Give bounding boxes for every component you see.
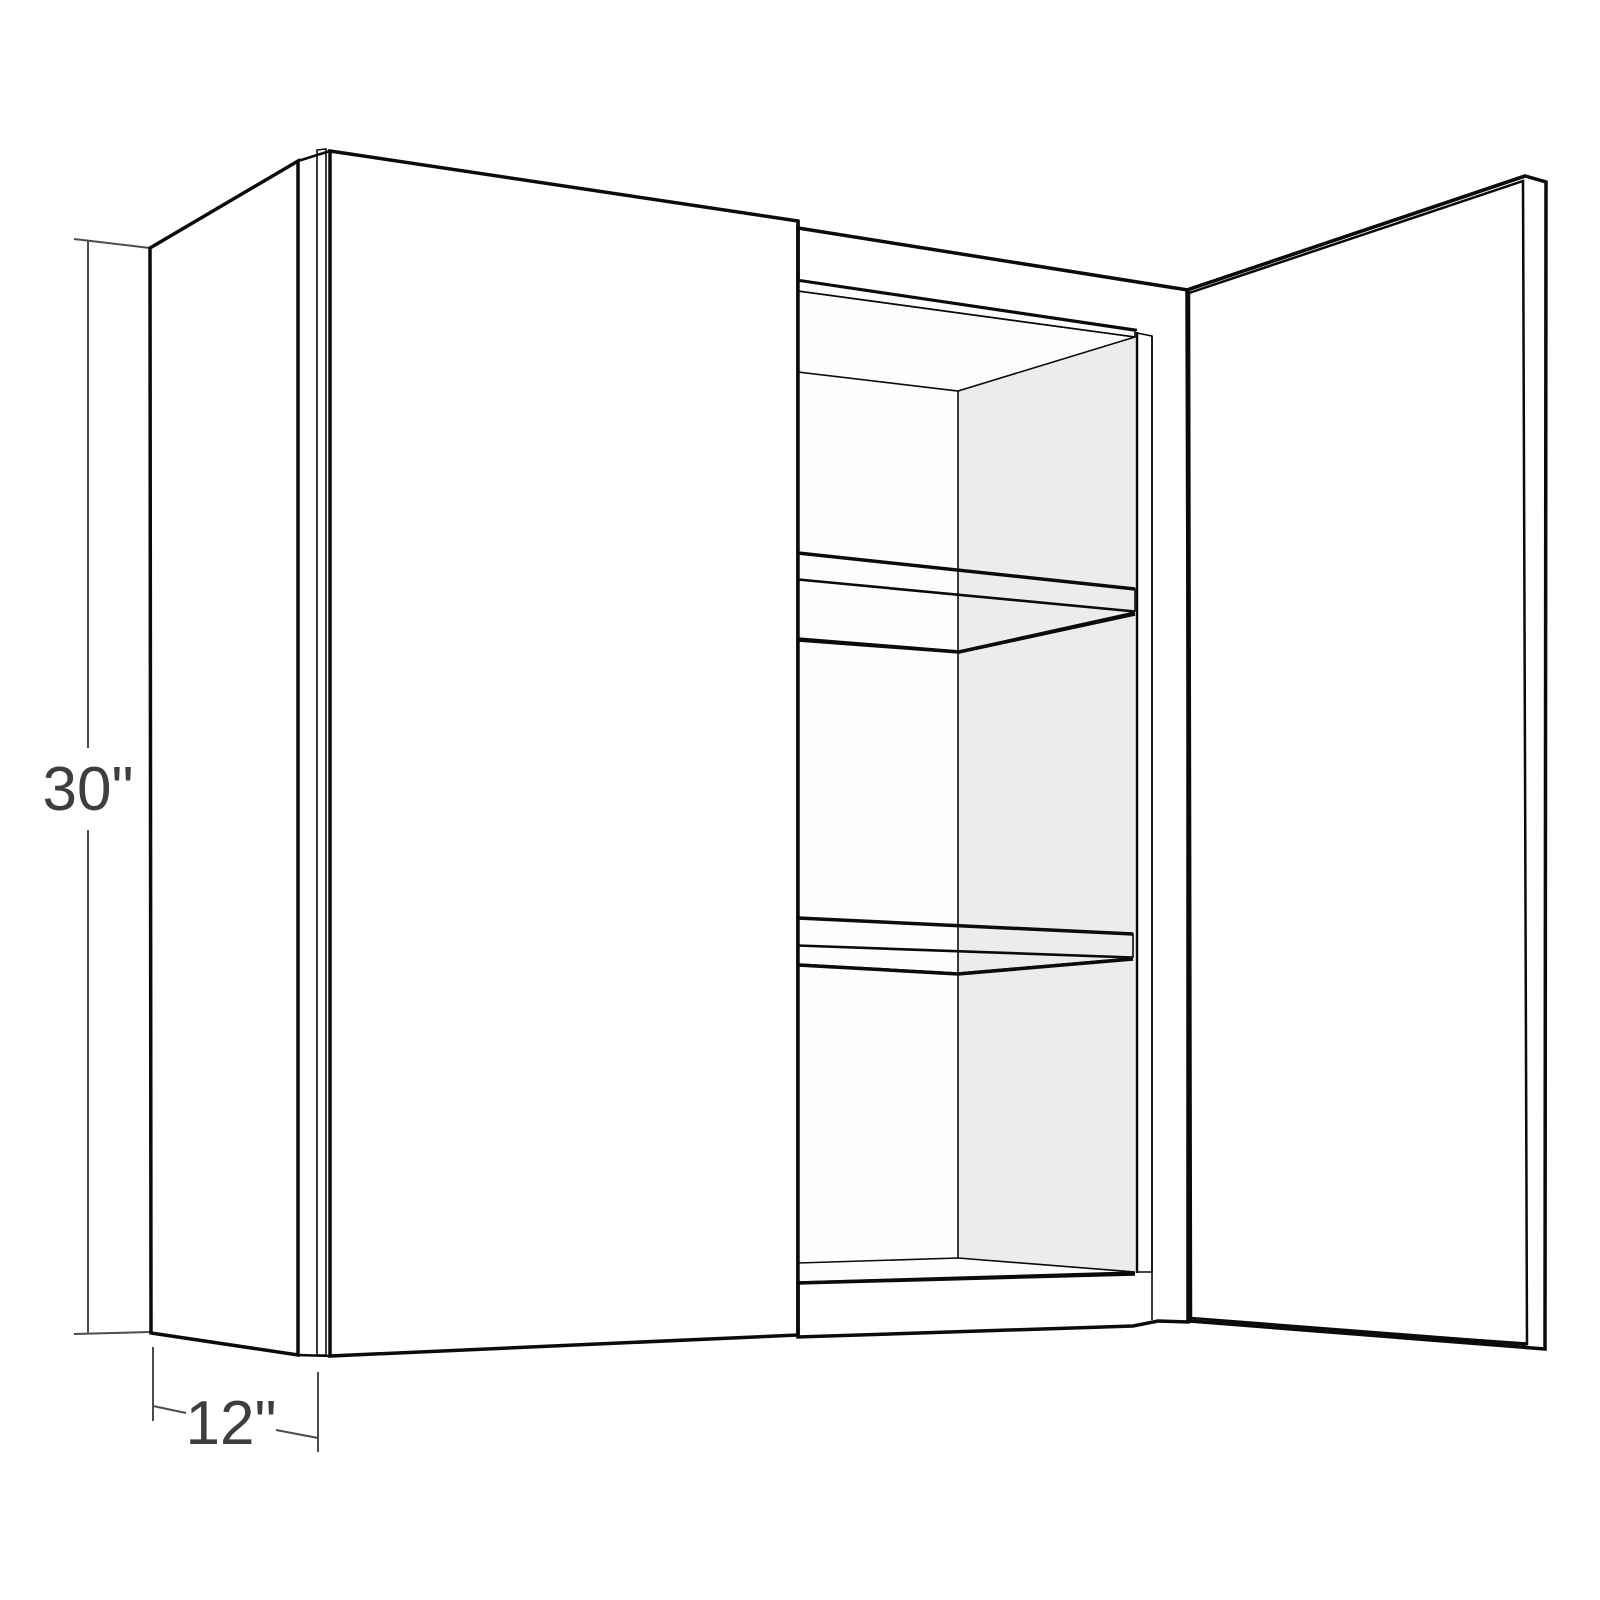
closed-left-door — [330, 151, 798, 1356]
right-stile-inner-edge — [1137, 333, 1152, 1272]
height-dimension-tick-top — [74, 239, 150, 248]
open-door-top-edge — [1187, 176, 1525, 290]
depth-dimension-line-left — [153, 1406, 186, 1413]
cabinet-interior — [798, 280, 1137, 1283]
open-door-inner-face — [1189, 181, 1527, 1344]
depth-dimension-label: 12" — [186, 1389, 277, 1458]
depth-dimension-line-right — [276, 1430, 318, 1438]
height-dimension: 30" — [43, 239, 150, 1334]
left-door-edge-strip-inner — [317, 149, 326, 1355]
height-dimension-tick-bottom — [74, 1332, 150, 1334]
height-dimension-label: 30" — [43, 755, 134, 824]
open-right-door — [1187, 176, 1546, 1349]
left-side-panel — [150, 161, 298, 1355]
cabinet-body — [150, 149, 1188, 1356]
cabinet-diagram: 30" 12" — [0, 0, 1600, 1600]
depth-dimension: 12" — [153, 1347, 318, 1458]
interior-right-wall — [958, 336, 1135, 1272]
open-door-bottom-edge — [1190, 1321, 1527, 1344]
open-door-outer — [1187, 176, 1546, 1349]
cabinet-diagram-page: 30" 12" — [0, 0, 1600, 1600]
